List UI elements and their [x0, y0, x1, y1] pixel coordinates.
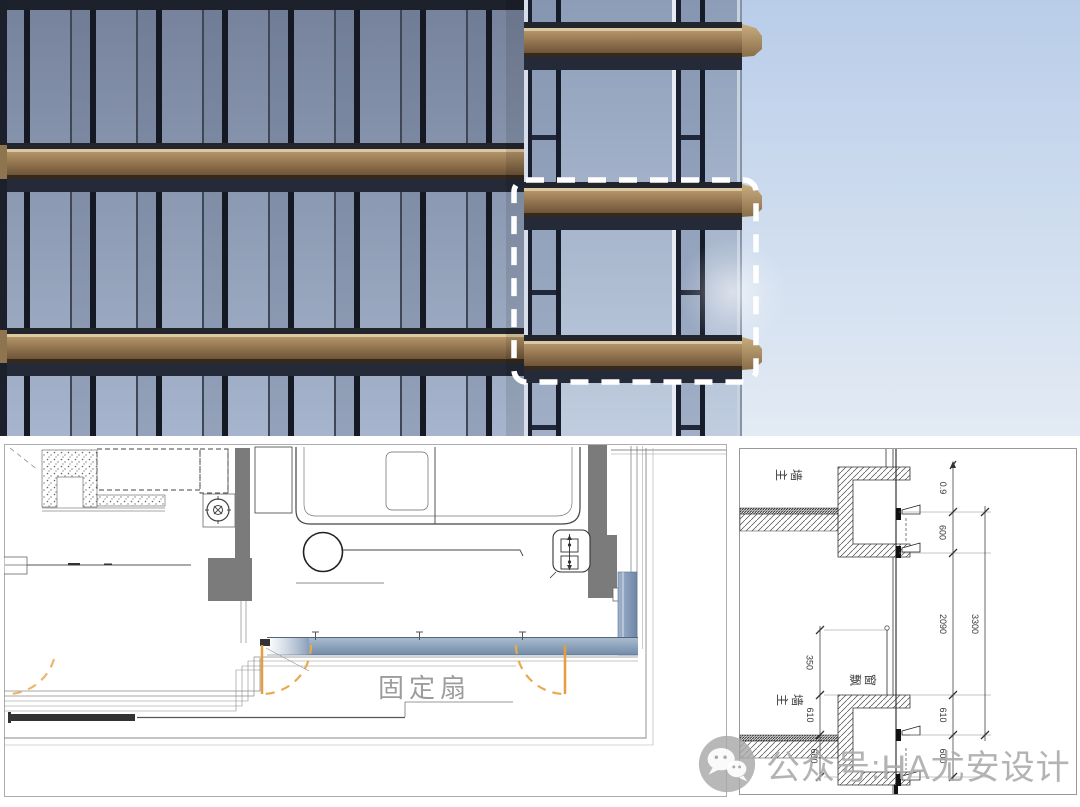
- bronze-band: [0, 143, 524, 192]
- dim-label: 600: [809, 748, 819, 763]
- bronze-band: [0, 328, 524, 376]
- dim-label: 350: [805, 655, 815, 670]
- dim-label: 3300: [970, 614, 980, 634]
- sun-glint: [678, 237, 788, 347]
- bronze-band: [524, 335, 762, 383]
- column-circle: [304, 533, 343, 572]
- outlet-symbol: [550, 530, 590, 578]
- dim-label: 600: [938, 525, 948, 540]
- dim-label: 610: [805, 707, 815, 722]
- dim-label: 2090: [938, 614, 948, 634]
- facade-photo: [0, 0, 1080, 436]
- dim-label: 600: [938, 748, 948, 763]
- dim-label: 0.9: [938, 482, 948, 495]
- left-bay-edge: [0, 0, 7, 436]
- dim-label: 610: [938, 707, 948, 722]
- bronze-band: [524, 22, 762, 70]
- slab-bottom: [740, 735, 838, 758]
- screenshot-root: 固定扇: [0, 0, 1080, 807]
- section-detail-drawing: 350 610 600 0.9 600 2090 610 600 3300 主墙…: [739, 448, 1077, 795]
- slab-top: [740, 508, 838, 531]
- cabinet-outline: [255, 447, 292, 513]
- facade-left-plane: [0, 0, 524, 436]
- fixed-sash-label: 固定扇: [378, 673, 471, 703]
- plan-detail-drawing: 固定扇: [4, 444, 727, 797]
- bronze-band: [524, 182, 762, 230]
- floor-drain-symbol: [203, 494, 235, 527]
